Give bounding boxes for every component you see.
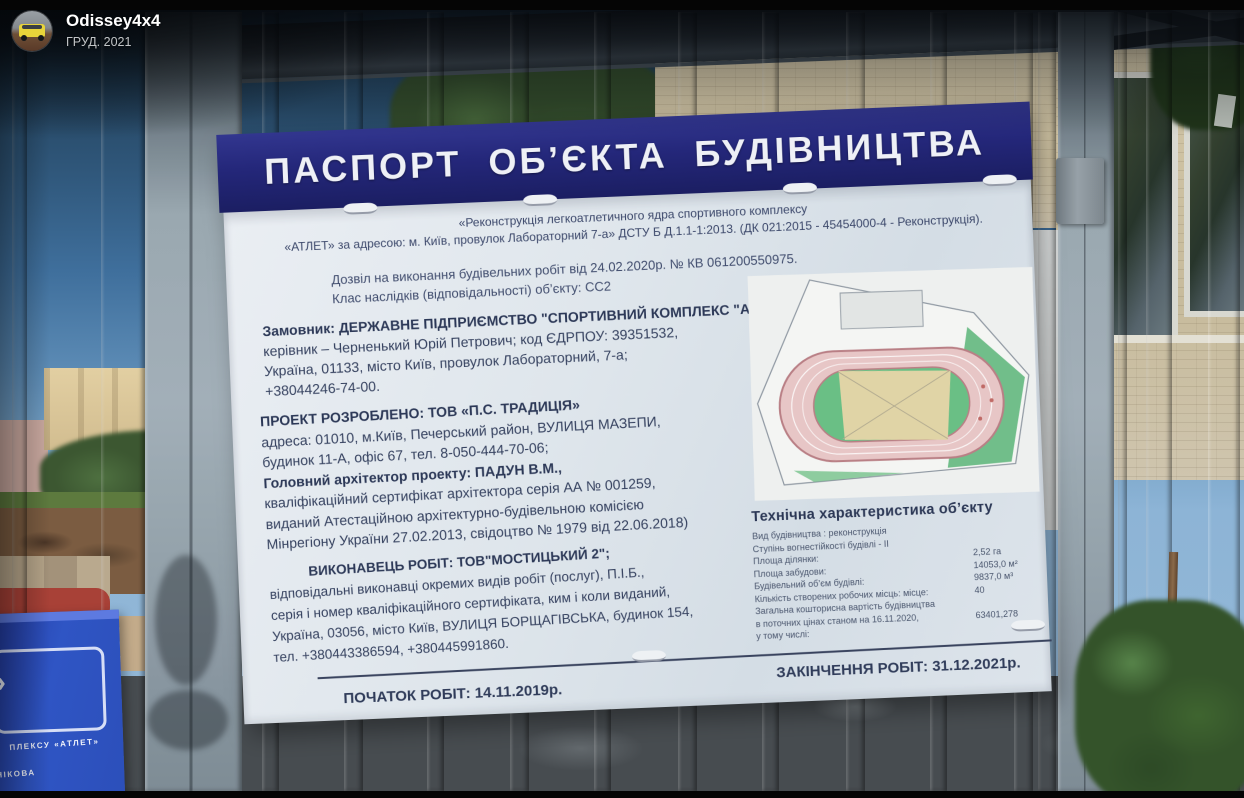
side-sign-text-1: ПЛЕКСУ «АТЛЕТ» (9, 737, 100, 752)
street-photo-scene: ПАСПОРТ ОБ’ЄКТА БУДІВНИЦТВА «Реконструкц… (0, 0, 1244, 798)
attribution-username[interactable]: Odissey4x4 (66, 11, 161, 31)
designer-block: ПРОЕКТ РОЗРОБЛЕНО: ТОВ «П.С. ТРАДИЦІЯ» а… (260, 389, 689, 555)
board-clip (983, 174, 1017, 186)
side-sign-text-2: НІКОВА (0, 768, 36, 780)
board-clip (1011, 619, 1045, 631)
site-plan-drawing (747, 267, 1039, 501)
technical-characteristics: Технічна характеристика об’єкту Вид буді… (751, 497, 1048, 642)
side-sign-outline-box (0, 646, 107, 734)
board-clip (783, 182, 817, 194)
paint-smudge (155, 555, 217, 685)
bottom-letterbox (0, 791, 1244, 798)
chevron-right-icon: » (0, 666, 4, 700)
start-date: ПОЧАТОК РОБІТ: 14.11.2019р. (343, 681, 562, 707)
side-blue-sign: » ПЛЕКСУ «АТЛЕТ» НІКОВА (0, 610, 125, 798)
board-clip (632, 650, 666, 662)
avatar[interactable] (12, 11, 52, 51)
paint-smudge (148, 690, 228, 750)
wheel-icon (21, 35, 27, 41)
photo-attribution[interactable]: Odissey4x4 ГРУД. 2021 (12, 11, 161, 51)
attribution-date: ГРУД. 2021 (66, 35, 161, 49)
board-clip (523, 194, 557, 206)
construction-passport-sign: ПАСПОРТ ОБ’ЄКТА БУДІВНИЦТВА «Реконструкц… (216, 102, 1054, 725)
board-clip (343, 202, 377, 214)
gate-hinge (1056, 158, 1104, 224)
end-date: ЗАКІНЧЕННЯ РОБІТ: 31.12.2021р. (776, 654, 1021, 681)
sign-board: «Реконструкція легкоатлетичного ядра спо… (223, 180, 1051, 725)
contractor-block: ВИКОНАВЕЦЬ РОБІТ: ТОВ"МОСТИЦЬКИЙ 2"; від… (268, 538, 695, 668)
wheel-icon (38, 35, 44, 41)
foliage-bottom-right (1075, 600, 1244, 798)
sign-title: ПАСПОРТ ОБ’ЄКТА БУДІВНИЦТВА (263, 121, 985, 193)
top-letterbox (0, 0, 1244, 10)
customer-block: Замовник: ДЕРЖАВНЕ ПІДПРИЄМСТВО "СПОРТИВ… (262, 296, 800, 401)
